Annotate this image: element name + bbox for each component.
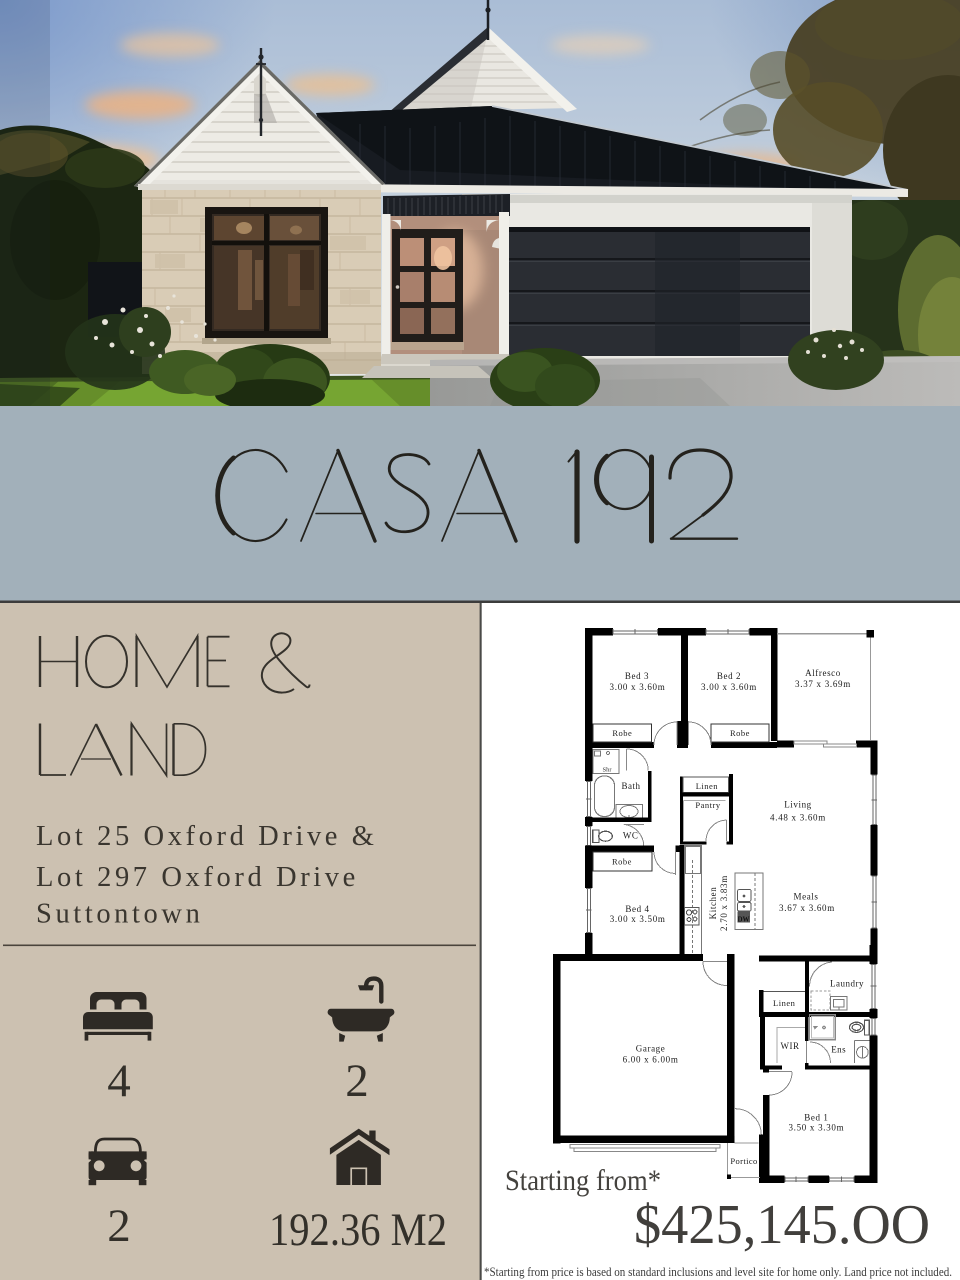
svg-text:6.00 x 6.00m: 6.00 x 6.00m <box>623 1055 679 1065</box>
svg-text:Laundry: Laundry <box>830 979 864 989</box>
svg-text:Living: Living <box>784 800 812 810</box>
svg-text:4: 4 <box>107 1055 131 1107</box>
svg-text:Kitchen: Kitchen <box>708 887 718 920</box>
svg-text:3.00 x 3.50m: 3.00 x 3.50m <box>610 914 666 924</box>
svg-text:Suttontown: Suttontown <box>36 899 203 930</box>
svg-text:Bed 4: Bed 4 <box>625 904 649 914</box>
svg-text:DW: DW <box>738 916 750 924</box>
svg-text:Lot 25 Oxford Drive &: Lot 25 Oxford Drive & <box>36 821 378 852</box>
svg-text:Portico: Portico <box>730 1156 757 1166</box>
svg-text:Linen: Linen <box>773 998 796 1008</box>
svg-text:2: 2 <box>345 1055 369 1107</box>
svg-text:WIR: WIR <box>781 1041 800 1051</box>
svg-text:Alfresco: Alfresco <box>805 668 841 678</box>
svg-text:Shr: Shr <box>602 767 612 774</box>
svg-text:Bed 2: Bed 2 <box>717 671 741 681</box>
svg-text:Bed 3: Bed 3 <box>625 671 649 681</box>
svg-text:3.67 x 3.60m: 3.67 x 3.60m <box>779 903 835 913</box>
svg-text:4.48 x 3.60m: 4.48 x 3.60m <box>770 813 826 823</box>
svg-text:Robe: Robe <box>612 857 632 867</box>
svg-text:Garage: Garage <box>636 1044 666 1054</box>
svg-text:Robe: Robe <box>730 728 750 738</box>
svg-text:Meals: Meals <box>794 892 819 902</box>
svg-text:2.70 x 3.83m: 2.70 x 3.83m <box>719 875 729 931</box>
svg-text:192.36 M2: 192.36 M2 <box>269 1204 447 1256</box>
svg-text:Lot 297 Oxford Drive: Lot 297 Oxford Drive <box>36 862 359 893</box>
svg-text:2: 2 <box>107 1200 131 1252</box>
svg-text:Robe: Robe <box>612 728 632 738</box>
svg-text:3.50 x 3.30m: 3.50 x 3.30m <box>788 1123 844 1133</box>
svg-text:Linen: Linen <box>696 781 719 791</box>
svg-text:Pantry: Pantry <box>695 800 720 810</box>
svg-text:3.37 x 3.69m: 3.37 x 3.69m <box>795 679 851 689</box>
svg-text:Bath: Bath <box>622 781 641 791</box>
svg-text:3.00 x 3.60m: 3.00 x 3.60m <box>610 682 666 692</box>
svg-text:*Starting from price is based: *Starting from price is based on standar… <box>484 1265 952 1279</box>
svg-text:Ens: Ens <box>831 1045 846 1055</box>
svg-text:$425,145.OO: $425,145.OO <box>634 1194 930 1256</box>
svg-text:Starting from*: Starting from* <box>505 1164 661 1197</box>
svg-text:Bed 1: Bed 1 <box>804 1113 828 1123</box>
svg-text:3.00 x 3.60m: 3.00 x 3.60m <box>701 682 757 692</box>
svg-text:WC: WC <box>623 831 639 841</box>
